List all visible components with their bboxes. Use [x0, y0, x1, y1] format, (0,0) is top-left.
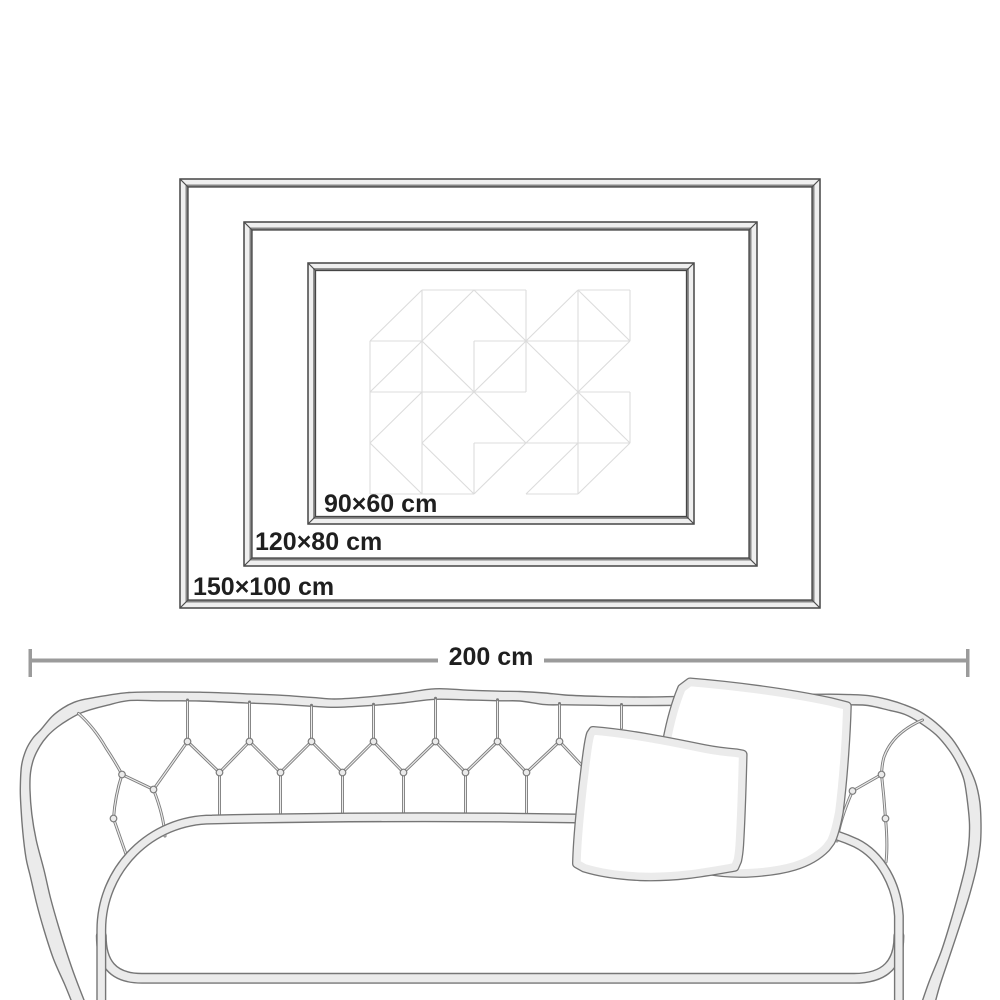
svg-text:200 cm: 200 cm	[449, 643, 534, 671]
svg-text:120×80 cm: 120×80 cm	[255, 528, 382, 556]
svg-text:150×100 cm: 150×100 cm	[193, 573, 334, 601]
svg-text:90×60 cm: 90×60 cm	[324, 490, 437, 518]
